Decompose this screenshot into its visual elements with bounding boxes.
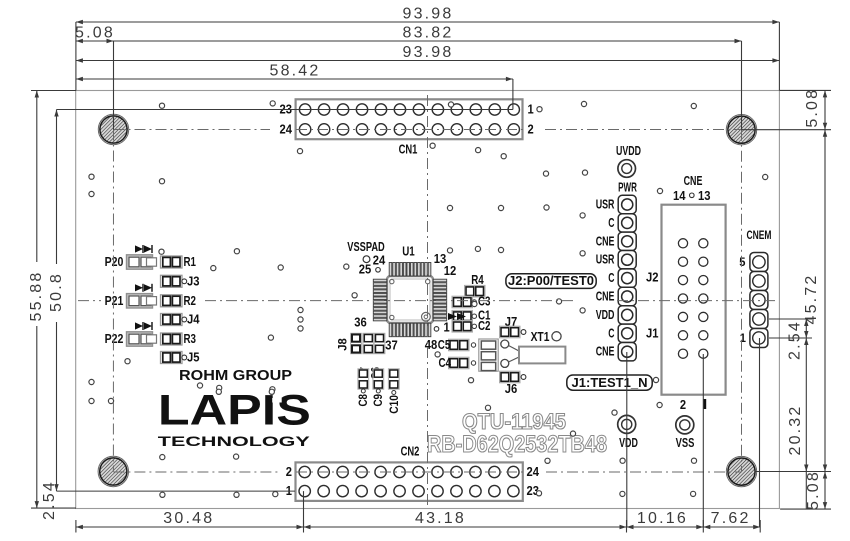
svg-text:10.16: 10.16 [637,510,688,527]
svg-text:C4: C4 [439,355,452,370]
svg-text:R3: R3 [184,331,197,346]
svg-text:J2:P00/TEST0: J2:P00/TEST0 [508,273,594,288]
svg-text:UVDD: UVDD [616,143,641,158]
svg-text:12: 12 [444,263,457,278]
svg-text:CNE: CNE [596,289,615,304]
svg-text:C10: C10 [387,395,401,414]
svg-text:43.18: 43.18 [415,510,466,527]
svg-text:CNE: CNE [596,344,615,359]
svg-text:83.82: 83.82 [402,25,453,42]
svg-text:P22: P22 [105,331,124,346]
svg-text:TECHNOLOGY: TECHNOLOGY [158,433,311,449]
svg-text:24: 24 [280,121,293,136]
svg-text:93.98: 93.98 [402,44,453,61]
svg-text:C8: C8 [356,394,370,407]
svg-text:XT1: XT1 [531,329,550,344]
svg-text:5.08: 5.08 [804,88,821,128]
svg-text:CN2: CN2 [401,444,420,459]
svg-text:CNE: CNE [684,173,703,188]
svg-text:C2: C2 [478,318,491,333]
svg-text:J1:TEST1_N: J1:TEST1_N [572,375,648,390]
svg-text:LAPIS: LAPIS [158,387,311,435]
svg-text:CNEM: CNEM [747,228,772,242]
svg-text:24: 24 [373,253,386,268]
svg-text:P20: P20 [105,254,124,269]
svg-text:1: 1 [444,320,450,335]
svg-text:5: 5 [739,255,745,269]
svg-text:30.48: 30.48 [163,510,214,527]
svg-text:ROHM GROUP: ROHM GROUP [179,368,292,384]
svg-text:J8: J8 [336,338,350,351]
svg-text:24: 24 [527,464,540,479]
svg-text:37: 37 [385,338,398,353]
svg-text:2.54: 2.54 [787,320,804,360]
svg-text:C: C [608,215,615,230]
svg-text:2: 2 [286,464,292,479]
svg-text:36: 36 [354,315,367,330]
svg-text:20.32: 20.32 [787,404,804,455]
svg-text:J3: J3 [187,273,200,288]
svg-text:C9: C9 [371,394,385,407]
svg-text:VSS: VSS [676,435,695,450]
svg-text:RB-D62Q2532TB48: RB-D62Q2532TB48 [427,431,607,458]
svg-text:VDD: VDD [619,435,638,450]
svg-text:U1: U1 [402,244,415,259]
svg-text:J2: J2 [646,270,659,285]
svg-text:PWR: PWR [618,179,637,194]
svg-text:VDD: VDD [596,307,615,322]
svg-text:93.98: 93.98 [402,6,453,23]
svg-text:R4: R4 [471,272,484,287]
svg-text:USR: USR [596,197,615,212]
svg-text:1: 1 [528,102,534,117]
svg-text:C: C [608,270,615,285]
svg-text:14: 14 [673,188,686,203]
svg-text:2.54: 2.54 [41,480,58,520]
svg-text:C5: C5 [438,337,451,352]
svg-text:2: 2 [680,397,686,412]
svg-text:J1: J1 [646,326,659,341]
svg-text:R2: R2 [184,293,197,308]
svg-text:50.8: 50.8 [48,272,65,312]
svg-text:CNE: CNE [596,233,615,248]
svg-text:45.72: 45.72 [803,273,820,324]
svg-text:R1: R1 [184,254,197,269]
svg-text:J4: J4 [187,312,200,327]
svg-text:C: C [608,325,615,340]
svg-text:P21: P21 [105,293,124,308]
svg-text:13: 13 [698,188,711,203]
svg-text:USR: USR [596,252,615,267]
svg-text:58.42: 58.42 [269,63,320,80]
svg-text:J5: J5 [187,350,200,365]
svg-text:25: 25 [359,262,372,277]
svg-text:2: 2 [528,121,534,136]
svg-text:7.62: 7.62 [711,510,751,527]
svg-text:J6: J6 [505,381,518,396]
svg-text:5.08: 5.08 [75,25,115,42]
svg-text:55.88: 55.88 [28,270,45,321]
svg-text:1: 1 [740,331,746,345]
svg-text:5.08: 5.08 [805,470,822,510]
svg-text:48: 48 [425,337,438,352]
svg-text:CN1: CN1 [399,142,418,157]
